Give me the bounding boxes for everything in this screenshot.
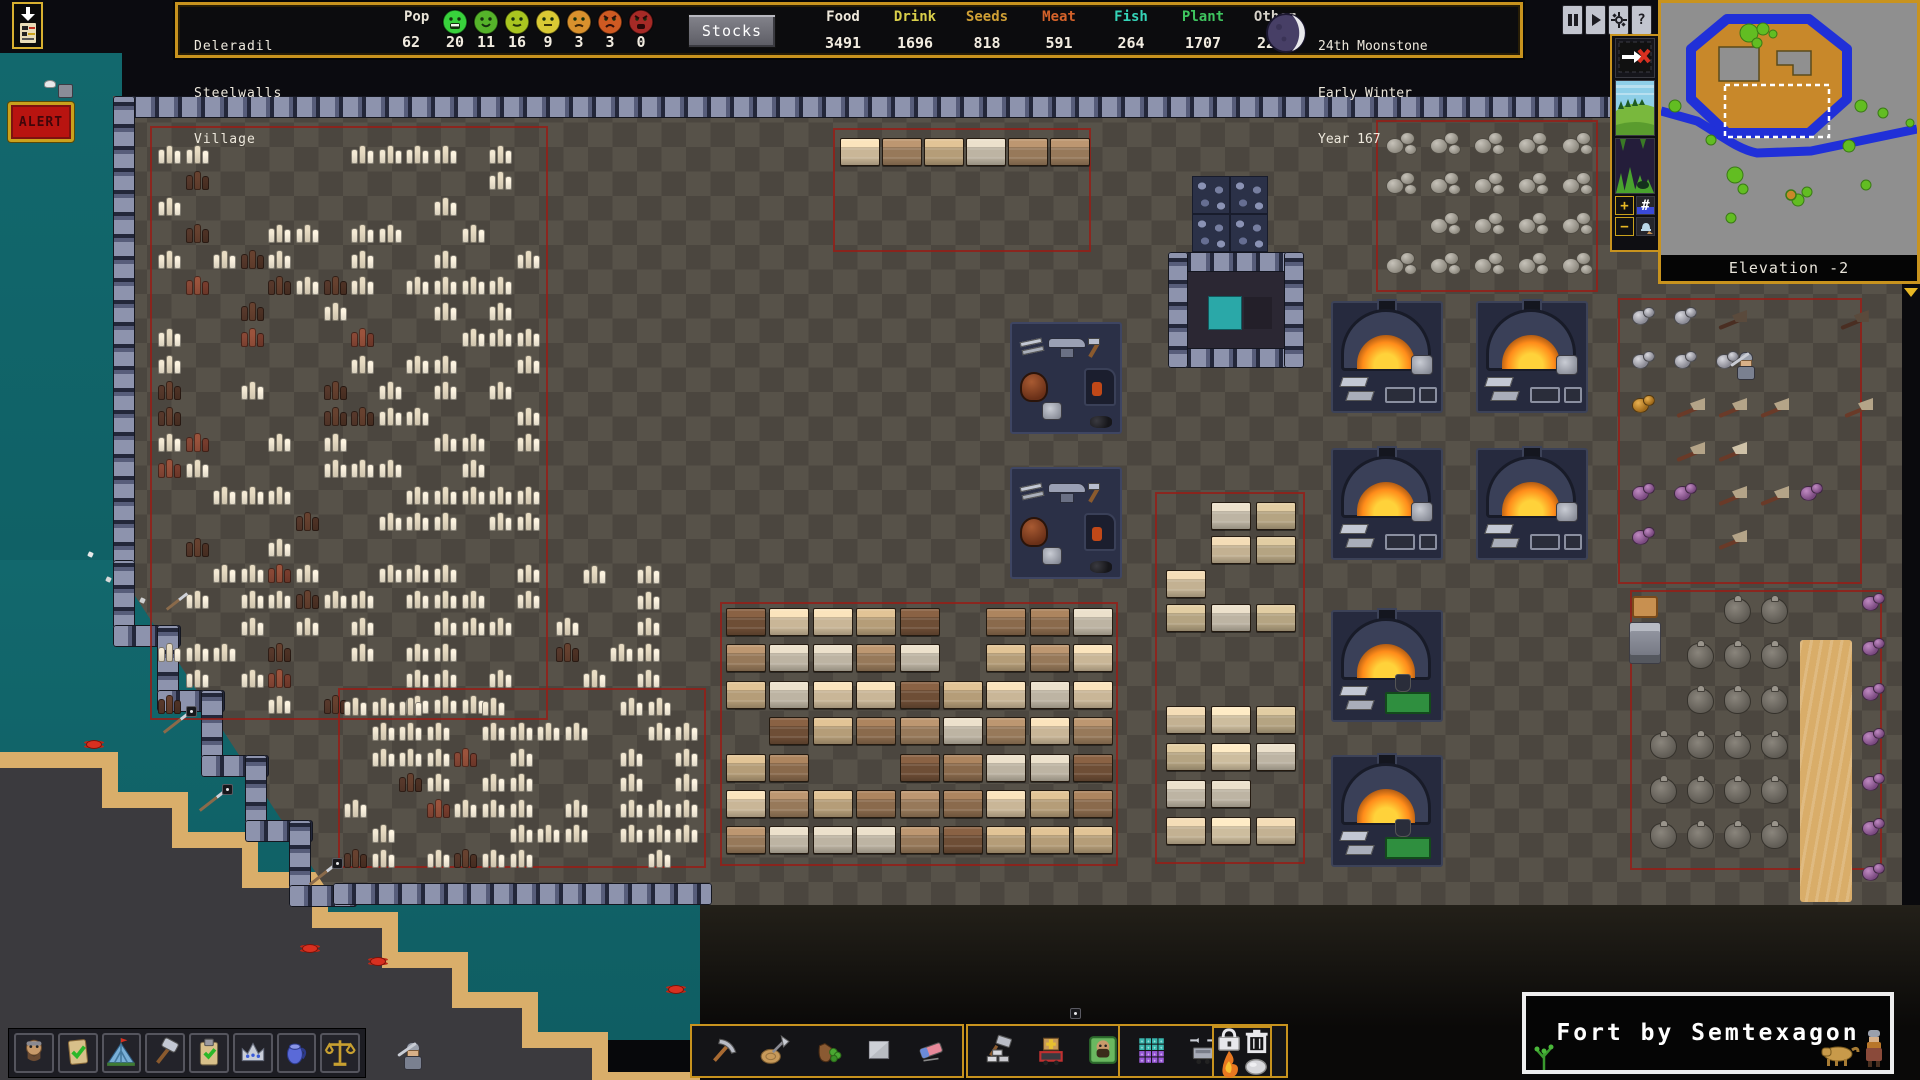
bag-stack	[620, 743, 644, 767]
bag	[359, 250, 366, 269]
bag-stack	[351, 350, 375, 374]
dropped-item	[1070, 1008, 1081, 1019]
bag	[628, 697, 635, 716]
bag	[553, 829, 560, 843]
resource-label: Seeds	[949, 9, 1025, 25]
bag	[158, 463, 165, 478]
bag	[664, 829, 671, 843]
bag	[653, 674, 660, 688]
cavern-view-icon	[1616, 139, 1654, 193]
stone-wall	[1284, 252, 1304, 368]
toolbar-group-1	[966, 1024, 1136, 1078]
bell-button[interactable]	[1636, 217, 1655, 236]
bag-stack	[324, 376, 348, 400]
bag-stack	[344, 844, 368, 868]
bag	[372, 701, 379, 716]
chop-button[interactable]	[752, 1028, 798, 1074]
bag	[462, 280, 469, 295]
smelter-furnace	[1476, 301, 1588, 413]
bag	[213, 568, 220, 583]
bag	[202, 648, 209, 662]
bag	[564, 643, 571, 662]
bag	[517, 568, 524, 583]
bag-stack	[427, 794, 451, 818]
bag-stack	[462, 219, 486, 243]
bag	[387, 145, 394, 164]
erase-icon	[915, 1034, 947, 1069]
bag	[174, 386, 181, 400]
bag-stack	[620, 692, 644, 716]
sand-sack	[1687, 778, 1714, 804]
bag-stack	[351, 140, 375, 164]
stone-block-stack	[1192, 176, 1230, 214]
sack-knot	[1660, 775, 1668, 782]
stone-button[interactable]	[1243, 1054, 1268, 1076]
bag-stack	[637, 560, 661, 584]
bag	[545, 722, 552, 741]
bag	[462, 228, 469, 243]
bag	[332, 695, 339, 714]
bag	[610, 647, 617, 662]
mood-face-unhappy-icon	[566, 9, 592, 35]
bag	[379, 568, 386, 583]
bag	[648, 803, 655, 818]
surface-view-button[interactable]	[1615, 80, 1655, 136]
bag	[462, 437, 469, 452]
bag	[174, 150, 181, 164]
bag	[505, 386, 512, 400]
bag	[186, 463, 193, 478]
bag-stack	[186, 219, 210, 243]
wooden-bin	[986, 790, 1026, 818]
bag-stack	[296, 219, 320, 243]
bag	[276, 564, 283, 583]
stone-wall	[289, 820, 311, 889]
bag	[395, 229, 402, 243]
bag	[166, 328, 173, 347]
bag	[304, 512, 311, 531]
pause-button[interactable]	[1562, 5, 1583, 35]
bag-stack	[399, 717, 423, 741]
bag	[380, 697, 387, 716]
ore-nugget	[1685, 351, 1697, 362]
wooden-bin	[1211, 536, 1251, 564]
bag	[691, 778, 698, 792]
objects-icon	[280, 1036, 312, 1071]
bag	[498, 727, 505, 741]
green-table	[1385, 692, 1431, 714]
bag	[683, 722, 690, 741]
bag-stack	[620, 819, 644, 843]
bag-stack	[434, 638, 458, 662]
wagon-box	[1632, 596, 1658, 618]
bag-stack	[565, 819, 589, 843]
citizens-button[interactable]	[14, 1033, 54, 1073]
bag	[276, 486, 283, 505]
bag	[221, 643, 228, 662]
bag	[166, 695, 173, 714]
boulder	[1536, 184, 1549, 195]
follow-cancel-button[interactable]	[1615, 38, 1655, 78]
crab	[302, 944, 318, 953]
bag	[498, 778, 505, 792]
wooden-bin	[1073, 644, 1113, 672]
bag-stack	[399, 692, 423, 716]
bag	[387, 512, 394, 531]
crab	[86, 740, 102, 749]
view-controls: + # −	[1610, 34, 1660, 252]
bag	[525, 512, 532, 531]
bag-stack	[482, 844, 506, 868]
zoom-in-button[interactable]: +	[1615, 196, 1634, 215]
erase-button[interactable]	[908, 1028, 954, 1074]
bag	[653, 596, 660, 610]
bag	[691, 727, 698, 741]
bag	[462, 799, 469, 818]
bag-stack	[517, 350, 541, 374]
bag-stack	[462, 585, 486, 609]
bag	[442, 250, 449, 269]
bag	[229, 255, 236, 269]
bag	[525, 433, 532, 452]
bag	[489, 621, 496, 636]
bag-stack	[241, 664, 265, 688]
wooden-bin	[813, 644, 853, 672]
bag	[166, 197, 173, 216]
bag	[645, 643, 652, 662]
bag	[359, 459, 366, 478]
resource-label: Food	[805, 9, 881, 25]
build-button[interactable]	[976, 1028, 1022, 1074]
bag	[367, 360, 374, 374]
bag	[351, 280, 358, 295]
anvil-base	[1060, 493, 1074, 503]
bag	[213, 254, 220, 269]
bag	[517, 490, 524, 505]
mood-face-ecstatic-icon	[442, 9, 468, 35]
stone-icon	[1240, 1048, 1272, 1080]
bag-stack	[379, 454, 403, 478]
grid-toggle-button[interactable]: #	[1636, 196, 1655, 215]
wooden-bin	[1256, 502, 1296, 530]
bag	[158, 254, 165, 269]
bag	[367, 333, 374, 347]
bag	[312, 517, 319, 531]
dropped-item	[332, 858, 343, 869]
armor-stand	[58, 84, 73, 98]
bag	[268, 568, 275, 583]
mood-count: 16	[504, 33, 530, 51]
sack-knot	[1734, 595, 1742, 602]
bag	[406, 490, 413, 505]
bag	[620, 777, 627, 792]
bag	[249, 590, 256, 609]
bag-stack	[241, 323, 265, 347]
bag-stack	[296, 507, 320, 531]
bag-stack	[462, 481, 486, 505]
ingot-mold	[1419, 387, 1437, 403]
ingot-mold	[1564, 534, 1582, 550]
resource-value: 1696	[877, 34, 953, 52]
bag	[526, 727, 533, 741]
ingot-mold	[1530, 534, 1560, 550]
bag-stack	[675, 819, 699, 843]
help-button[interactable]: ?	[1631, 5, 1652, 35]
wooden-bin	[813, 826, 853, 854]
scroll-up-arrow[interactable]	[1904, 288, 1918, 297]
bag	[166, 381, 173, 400]
bag	[618, 643, 625, 662]
boulder	[1580, 264, 1593, 275]
battle-axe	[1716, 530, 1750, 554]
bag	[442, 381, 449, 400]
bag	[443, 854, 450, 868]
wooden-bin	[900, 754, 940, 782]
sand-sack	[1724, 598, 1751, 624]
metal-bar	[1339, 831, 1368, 841]
resource-value: 1707	[1165, 34, 1241, 52]
wooden-bin	[813, 790, 853, 818]
gather-button[interactable]	[804, 1028, 850, 1074]
bag	[367, 595, 374, 609]
boulder	[1532, 252, 1547, 265]
bag	[213, 647, 220, 662]
bag	[312, 595, 319, 609]
melt-button[interactable]	[1216, 1054, 1241, 1076]
bag	[620, 828, 627, 843]
sack-knot	[1734, 685, 1742, 692]
wooden-bin	[1050, 138, 1090, 166]
mood-count: 0	[628, 33, 654, 51]
cavern-view-button[interactable]	[1615, 138, 1655, 194]
bag	[340, 464, 347, 478]
bag	[434, 149, 441, 164]
labor-button[interactable]	[145, 1033, 185, 1073]
wooden-bin	[1211, 780, 1251, 808]
bag	[359, 643, 366, 662]
bag-stack	[241, 585, 265, 609]
zoom-out-button[interactable]: −	[1615, 217, 1634, 236]
bag	[276, 224, 283, 243]
ore-nugget	[1685, 483, 1697, 494]
wooden-bin	[813, 681, 853, 709]
bag	[470, 433, 477, 452]
bag-stack	[296, 559, 320, 583]
ore-nugget	[1873, 638, 1885, 649]
metal-bar	[1345, 391, 1374, 401]
anvil-top	[1048, 483, 1086, 493]
nobles-button[interactable]	[233, 1033, 273, 1073]
bag-stack	[427, 743, 451, 767]
bag	[352, 799, 359, 818]
bag-stack	[556, 638, 580, 662]
ore-cluster	[1862, 776, 1879, 791]
bag-stack	[482, 794, 506, 818]
wooden-bin	[856, 608, 896, 636]
bag	[202, 674, 209, 688]
bag-stack	[213, 245, 237, 269]
ore-nugget	[1811, 483, 1823, 494]
ore-cluster	[1632, 530, 1649, 545]
bag	[359, 590, 366, 609]
bag	[462, 748, 469, 767]
sand-sack	[1687, 643, 1714, 669]
bag-stack	[351, 271, 375, 295]
bag-stack	[517, 585, 541, 609]
play-button[interactable]	[1585, 5, 1606, 35]
cauldron	[1395, 674, 1411, 692]
smelter-furnace	[1331, 301, 1443, 413]
bag	[174, 464, 181, 478]
metal-bar	[1339, 377, 1368, 387]
wooden-bin	[1073, 790, 1113, 818]
dwarf-part	[1737, 366, 1755, 380]
bag	[186, 437, 193, 452]
bag-stack	[372, 717, 396, 741]
tasks-button[interactable]	[58, 1033, 98, 1073]
surface-view-icon	[1616, 81, 1654, 135]
bag-stack	[648, 844, 672, 868]
bag	[434, 621, 441, 636]
bag-stack	[489, 297, 513, 321]
minus-glyph: −	[1620, 220, 1628, 234]
bag	[414, 564, 421, 583]
bag	[249, 302, 256, 321]
traffic-button[interactable]: ++++++++++++++++	[1128, 1028, 1174, 1074]
stone-wall	[333, 883, 712, 905]
bag-stack	[241, 297, 265, 321]
ore-nugget	[1873, 683, 1885, 694]
bag-stack	[427, 717, 451, 741]
resource-meat: Meat591	[1021, 9, 1097, 52]
ore-nugget	[1643, 351, 1655, 362]
justice-button[interactable]	[320, 1033, 360, 1073]
bag-stack	[517, 323, 541, 347]
plus-glyph: +	[1620, 199, 1628, 213]
bag-stack	[372, 819, 396, 843]
bag-stack	[427, 768, 451, 792]
bag	[407, 722, 414, 741]
bag-stack	[268, 585, 292, 609]
resource-plant: Plant1707	[1165, 9, 1241, 52]
bag	[583, 673, 590, 688]
bag	[620, 701, 627, 716]
bag	[340, 595, 347, 609]
bag	[367, 622, 374, 636]
labor-icon	[149, 1036, 181, 1071]
crab	[370, 957, 386, 966]
smooth-button[interactable]	[856, 1028, 902, 1074]
bag	[435, 849, 442, 868]
wooden-bin	[769, 717, 809, 745]
bag	[158, 149, 165, 164]
bag	[556, 621, 563, 636]
wooden-bin	[1166, 706, 1206, 734]
boulder-pile	[1560, 128, 1596, 158]
places-button[interactable]	[102, 1033, 142, 1073]
barrel	[1020, 372, 1048, 402]
wooden-bin	[813, 717, 853, 745]
bag-stack	[158, 690, 182, 714]
sand-sack	[1650, 733, 1677, 759]
bag	[268, 594, 275, 609]
game-viewport[interactable]: ALERT Deleradil Steelwalls Village Pop 6…	[0, 0, 1920, 1080]
stocks-button[interactable]: Stocks	[688, 14, 776, 48]
bag	[324, 437, 331, 452]
bag	[422, 595, 429, 609]
bag-stack	[379, 219, 403, 243]
wooden-bin	[966, 138, 1006, 166]
bag-stack	[158, 323, 182, 347]
bag	[360, 854, 367, 868]
bag	[434, 594, 441, 609]
announcements-button[interactable]	[12, 2, 43, 49]
bag	[359, 355, 366, 374]
bag-stack	[517, 402, 541, 426]
bag	[434, 490, 441, 505]
embers	[1092, 382, 1102, 396]
bag	[284, 700, 291, 714]
bag	[296, 516, 303, 531]
boulder	[1492, 264, 1505, 275]
bag	[442, 433, 449, 452]
bag	[620, 752, 627, 767]
bag	[351, 332, 358, 347]
ore-cluster	[1862, 821, 1879, 836]
wooden-bin	[882, 138, 922, 166]
ore-nugget	[1643, 307, 1655, 318]
ingot-mold	[1385, 387, 1415, 403]
work-orders-button[interactable]	[189, 1033, 229, 1073]
boulder	[1448, 224, 1461, 235]
stone-wall	[1168, 252, 1188, 368]
objects-button[interactable]	[277, 1033, 317, 1073]
settings-button[interactable]	[1608, 5, 1629, 35]
metal-bar	[1484, 524, 1513, 534]
resource-label: Meat	[1021, 9, 1097, 25]
bag	[359, 407, 366, 426]
bag	[664, 854, 671, 868]
boulder	[1404, 264, 1417, 275]
metal-bar	[1022, 491, 1045, 500]
ore-cluster	[1862, 866, 1879, 881]
bag	[533, 491, 540, 505]
boulder	[1536, 264, 1549, 275]
boulder	[1444, 172, 1459, 185]
stockpile-button[interactable]	[1028, 1028, 1074, 1074]
alert-banner[interactable]: ALERT	[8, 102, 74, 142]
bag	[194, 433, 201, 452]
bag	[395, 412, 402, 426]
minimap[interactable]: Elevation -2	[1658, 0, 1920, 284]
dig-button[interactable]	[700, 1028, 746, 1074]
bag-stack	[510, 844, 534, 868]
bag	[304, 590, 311, 609]
bag-stack	[372, 692, 396, 716]
smelter-furnace	[1331, 610, 1443, 722]
smelter-furnace	[1331, 755, 1443, 867]
bag	[367, 648, 374, 662]
sand-sack	[1650, 778, 1677, 804]
dwarf-unit	[1733, 352, 1759, 386]
bag	[194, 590, 201, 609]
bag	[406, 280, 413, 295]
sack-knot	[1734, 775, 1742, 782]
bag	[241, 385, 248, 400]
bag	[691, 829, 698, 843]
wooden-bin	[1166, 570, 1206, 598]
bag-stack	[637, 638, 661, 662]
